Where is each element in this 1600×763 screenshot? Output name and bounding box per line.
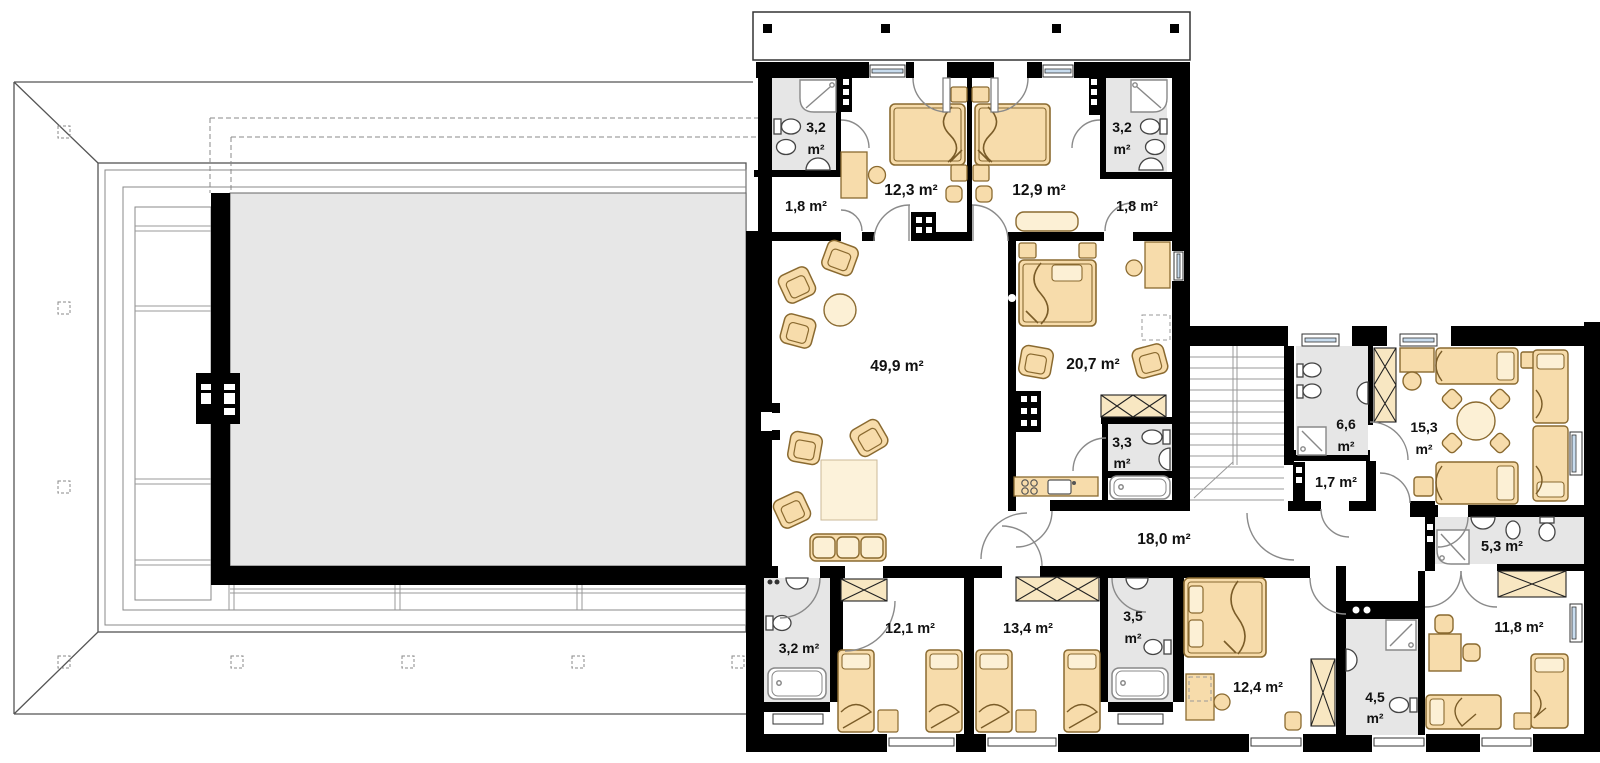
svg-text:12,1 m²: 12,1 m² <box>885 621 935 637</box>
svg-text:13,4 m²: 13,4 m² <box>1003 621 1053 637</box>
svg-text:m²: m² <box>1366 710 1383 726</box>
svg-text:m²: m² <box>1124 630 1141 646</box>
svg-text:m²: m² <box>1337 438 1354 454</box>
svg-text:1,7 m²: 1,7 m² <box>1315 475 1357 491</box>
svg-text:5,3 m²: 5,3 m² <box>1481 539 1523 555</box>
svg-text:m²: m² <box>1113 141 1130 157</box>
svg-text:4,5: 4,5 <box>1365 689 1385 705</box>
svg-text:20,7 m²: 20,7 m² <box>1066 356 1119 373</box>
svg-text:18,0 m²: 18,0 m² <box>1137 531 1190 548</box>
svg-text:3,2: 3,2 <box>806 119 826 135</box>
svg-text:1,8 m²: 1,8 m² <box>785 199 827 215</box>
svg-text:12,9 m²: 12,9 m² <box>1012 182 1065 199</box>
svg-text:15,3: 15,3 <box>1410 419 1437 435</box>
svg-text:m²: m² <box>807 141 824 157</box>
svg-text:49,9 m²: 49,9 m² <box>870 358 923 375</box>
svg-text:3,3: 3,3 <box>1112 434 1132 450</box>
svg-text:m²: m² <box>1415 441 1432 457</box>
svg-text:m²: m² <box>1113 455 1130 471</box>
svg-text:11,8 m²: 11,8 m² <box>1494 620 1543 636</box>
svg-text:3,5: 3,5 <box>1123 608 1143 624</box>
svg-text:1,8 m²: 1,8 m² <box>1116 199 1158 215</box>
svg-text:6,6: 6,6 <box>1336 416 1356 432</box>
svg-text:12,3 m²: 12,3 m² <box>884 182 937 199</box>
svg-text:3,2 m²: 3,2 m² <box>779 640 820 656</box>
svg-text:12,4 m²: 12,4 m² <box>1233 680 1283 696</box>
svg-text:3,2: 3,2 <box>1112 119 1132 135</box>
